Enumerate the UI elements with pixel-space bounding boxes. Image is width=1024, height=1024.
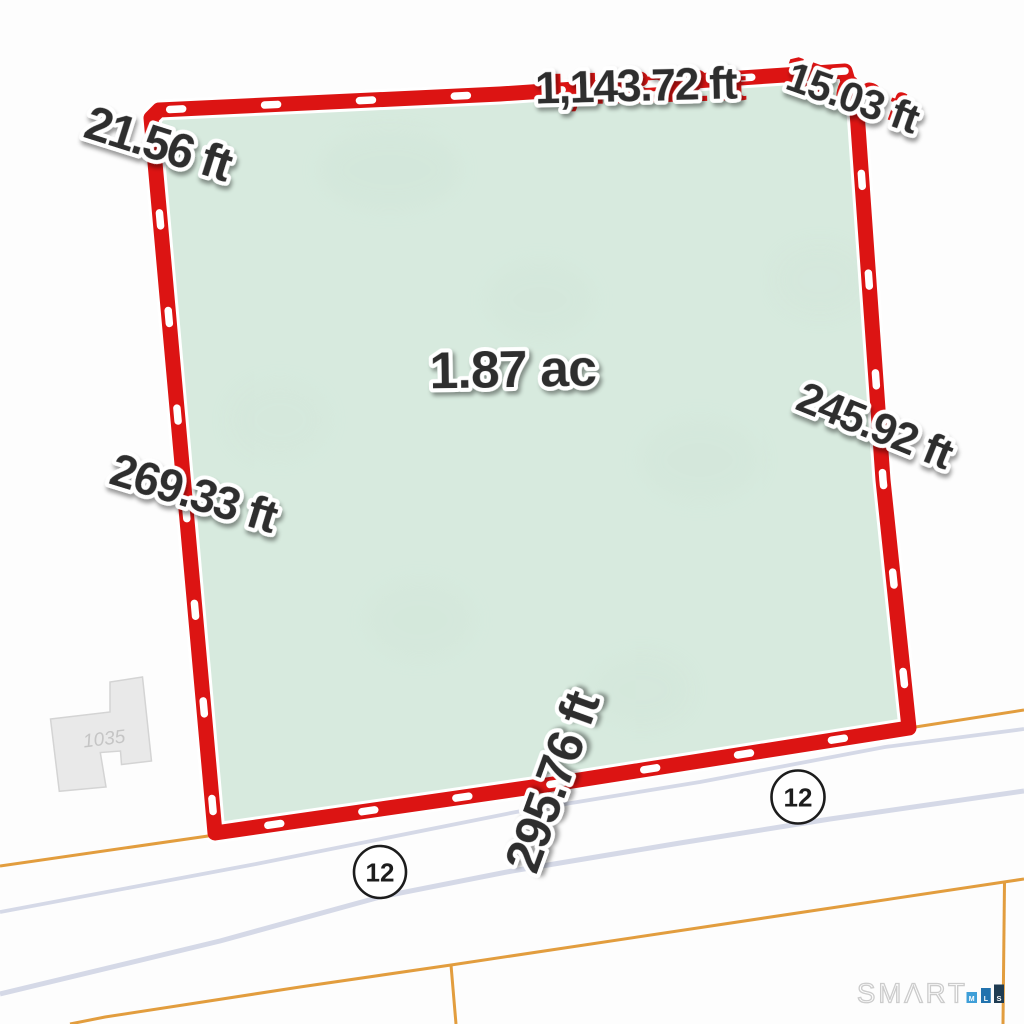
- svg-text:1.87 ac: 1.87 ac: [429, 340, 597, 401]
- svg-text:S: S: [996, 994, 1001, 1003]
- svg-text:M: M: [969, 996, 975, 1003]
- svg-text:12: 12: [784, 783, 813, 813]
- svg-text:1,143.72 ft: 1,143.72 ft: [534, 57, 738, 113]
- svg-text:L: L: [984, 996, 989, 1003]
- svg-text:SMΛRT: SMΛRT: [857, 978, 968, 1009]
- svg-text:12: 12: [366, 858, 395, 888]
